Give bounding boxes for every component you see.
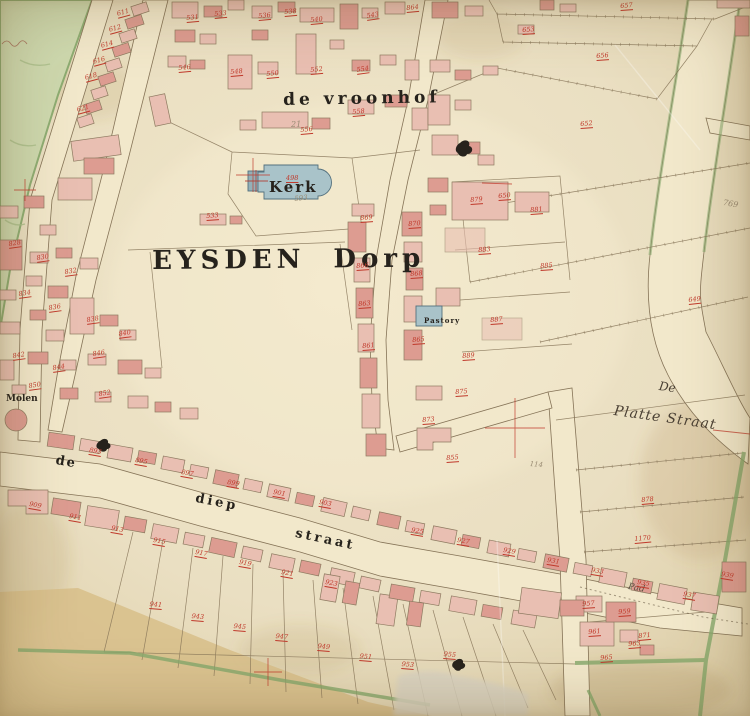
rectory-building <box>416 306 442 326</box>
cadastral-map: de vroonhof EYSDEN Dorp Kerk Pastory Mol… <box>0 0 750 716</box>
map-graphics <box>0 0 750 716</box>
mill-building <box>5 409 27 431</box>
